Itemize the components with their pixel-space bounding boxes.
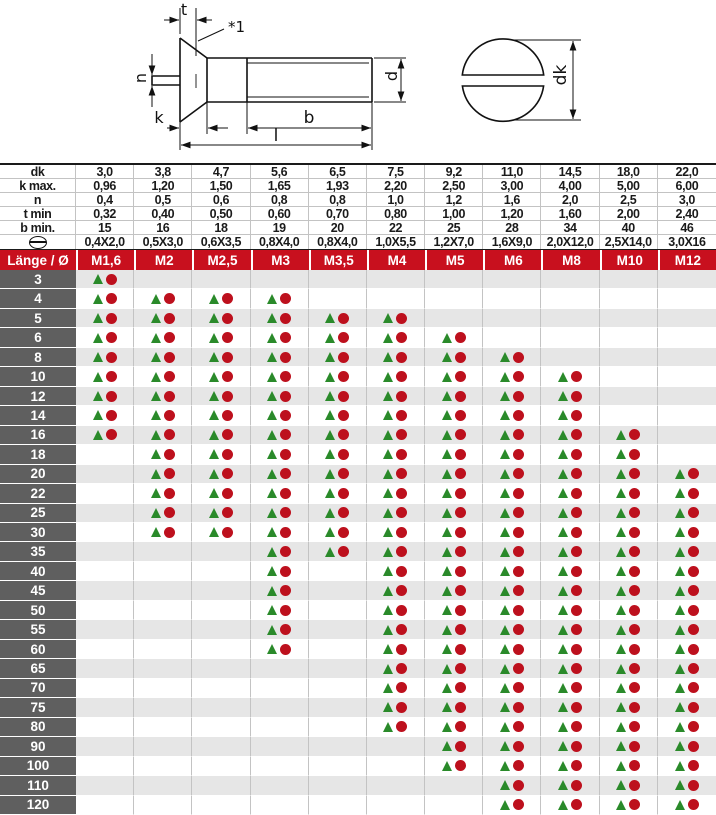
triangle-icon: [383, 605, 393, 615]
triangle-icon: [616, 547, 626, 557]
circle-icon: [688, 468, 699, 479]
triangle-icon: [675, 586, 685, 596]
circle-icon: [455, 527, 466, 538]
matrix-cell: [76, 406, 134, 425]
dim-value-cell: 1,6: [483, 193, 541, 207]
length-row-label: 40: [0, 562, 76, 581]
circle-icon: [280, 332, 291, 343]
triangle-icon: [93, 391, 103, 401]
circle-icon: [455, 507, 466, 518]
dim-value-cell: 2,20: [367, 179, 425, 193]
matrix-cell: [425, 718, 483, 737]
matrix-cell: [483, 504, 541, 523]
matrix-cell: [600, 581, 658, 600]
matrix-row: 45: [0, 581, 716, 600]
dim-value-cell: 28: [483, 221, 541, 235]
triangle-icon: [267, 469, 277, 479]
circle-icon: [222, 313, 233, 324]
length-row-label: 55: [0, 620, 76, 639]
circle-icon: [455, 468, 466, 479]
triangle-icon: [267, 644, 277, 654]
matrix-cell: [192, 367, 250, 386]
circle-icon: [571, 780, 582, 791]
circle-icon: [571, 527, 582, 538]
matrix-cell: [367, 309, 425, 328]
matrix-cell: [483, 659, 541, 678]
circle-icon: [280, 507, 291, 518]
circle-icon: [280, 644, 291, 655]
dim-row-label: k max.: [0, 179, 76, 193]
matrix-cell: [134, 640, 192, 659]
triangle-icon: [675, 780, 685, 790]
length-row-label: 6: [0, 328, 76, 347]
triangle-icon: [675, 488, 685, 498]
circle-icon: [338, 371, 349, 382]
matrix-cell: [76, 718, 134, 737]
matrix-row: 70: [0, 679, 716, 698]
circle-icon: [513, 682, 524, 693]
dim-value-cell: 1,65: [251, 179, 309, 193]
matrix-cell: [367, 523, 425, 542]
length-row-label: 22: [0, 484, 76, 503]
circle-icon: [455, 605, 466, 616]
circle-icon: [629, 663, 640, 674]
matrix-cell: [541, 620, 599, 639]
dim-table: dk3,03,84,75,66,57,59,211,014,518,022,0k…: [0, 163, 716, 249]
matrix-cell: [251, 484, 309, 503]
matrix-cell: [600, 562, 658, 581]
dim-value-cell: 1,50: [192, 179, 250, 193]
matrix-cell: [541, 426, 599, 445]
circle-icon: [164, 488, 175, 499]
matrix-cell: [483, 328, 541, 347]
circle-icon: [513, 799, 524, 810]
triangle-icon: [383, 430, 393, 440]
dim-value-cell: 2,40: [658, 207, 716, 221]
circle-icon: [629, 468, 640, 479]
matrix-cell: [192, 426, 250, 445]
matrix-row: 3: [0, 270, 716, 289]
circle-icon: [164, 410, 175, 421]
length-row-label: 30: [0, 523, 76, 542]
circle-icon: [280, 488, 291, 499]
matrix-cell: [483, 620, 541, 639]
matrix-cell: [367, 270, 425, 289]
matrix-cell: [251, 620, 309, 639]
circle-icon: [513, 585, 524, 596]
triangle-icon: [209, 488, 219, 498]
triangle-icon: [442, 605, 452, 615]
matrix-cell: [658, 640, 716, 659]
matrix-cell: [541, 737, 599, 756]
circle-icon: [280, 429, 291, 440]
matrix-cell: [483, 757, 541, 776]
matrix-cell: [367, 484, 425, 503]
circle-icon: [571, 488, 582, 499]
circle-icon: [396, 488, 407, 499]
circle-icon: [571, 741, 582, 752]
matrix-cell: [309, 737, 367, 756]
triangle-icon: [383, 527, 393, 537]
matrix-cell: [76, 737, 134, 756]
circle-icon: [513, 507, 524, 518]
triangle-icon: [209, 469, 219, 479]
matrix-cell: [425, 445, 483, 464]
circle-icon: [629, 702, 640, 713]
circle-icon: [455, 702, 466, 713]
length-row-label: 45: [0, 581, 76, 600]
matrix-row: 18: [0, 445, 716, 464]
matrix-cell: [192, 504, 250, 523]
matrix-row: 100: [0, 757, 716, 776]
circle-icon: [222, 293, 233, 304]
circle-icon: [164, 507, 175, 518]
circle-icon: [280, 546, 291, 557]
matrix-cell: [192, 776, 250, 795]
triangle-icon: [616, 644, 626, 654]
matrix-cell: [425, 289, 483, 308]
matrix-cell: [658, 737, 716, 756]
matrix-cell: [367, 698, 425, 717]
triangle-icon: [616, 566, 626, 576]
matrix-cell: [367, 679, 425, 698]
triangle-icon: [267, 430, 277, 440]
triangle-icon: [383, 547, 393, 557]
dim-row-label: n: [0, 193, 76, 207]
matrix-cell: [309, 465, 367, 484]
matrix-cell: [425, 426, 483, 445]
matrix-cell: [658, 504, 716, 523]
circle-icon: [571, 663, 582, 674]
triangle-icon: [151, 294, 161, 304]
triangle-icon: [558, 644, 568, 654]
matrix-cell: [134, 484, 192, 503]
circle-icon: [106, 293, 117, 304]
triangle-icon: [616, 780, 626, 790]
matrix-cell: [192, 328, 250, 347]
matrix-cell: [600, 679, 658, 698]
dim-value-cell: 2,0: [541, 193, 599, 207]
circle-icon: [222, 391, 233, 402]
circle-icon: [222, 449, 233, 460]
circle-icon: [455, 644, 466, 655]
dim-row-label: dk: [0, 165, 76, 179]
length-row-label: 100: [0, 757, 76, 776]
matrix-cell: [658, 465, 716, 484]
triangle-icon: [325, 391, 335, 401]
circle-icon: [396, 644, 407, 655]
matrix-row: 6: [0, 328, 716, 347]
triangle-icon: [93, 352, 103, 362]
triangle-icon: [151, 508, 161, 518]
length-row-label: 50: [0, 601, 76, 620]
matrix-cell: [483, 601, 541, 620]
dim-value-cell: 0,80: [367, 207, 425, 221]
circle-icon: [571, 721, 582, 732]
matrix-cell: [134, 542, 192, 561]
triangle-icon: [675, 722, 685, 732]
matrix-cell: [251, 270, 309, 289]
matrix-cell: [658, 679, 716, 698]
matrix-cell: [309, 698, 367, 717]
circle-icon: [164, 449, 175, 460]
circle-icon: [280, 585, 291, 596]
circle-icon: [280, 624, 291, 635]
matrix-cell: [251, 601, 309, 620]
circle-icon: [280, 605, 291, 616]
circle-icon: [396, 449, 407, 460]
triangle-icon: [267, 488, 277, 498]
triangle-icon: [500, 352, 510, 362]
triangle-icon: [500, 508, 510, 518]
triangle-icon: [500, 664, 510, 674]
circle-icon: [629, 644, 640, 655]
matrix-cell: [134, 289, 192, 308]
circle-icon: [338, 410, 349, 421]
circle-icon: [396, 702, 407, 713]
circle-icon: [571, 546, 582, 557]
matrix-cell: [76, 542, 134, 561]
triangle-icon: [442, 702, 452, 712]
matrix-cell: [367, 289, 425, 308]
matrix-cell: [309, 367, 367, 386]
circle-icon: [338, 507, 349, 518]
matrix-cell: [541, 367, 599, 386]
triangle-icon: [558, 449, 568, 459]
matrix-cell: [251, 757, 309, 776]
triangle-icon: [267, 527, 277, 537]
circle-icon: [629, 721, 640, 732]
matrix-cell: [76, 659, 134, 678]
matrix-cell: [76, 387, 134, 406]
triangle-icon: [616, 430, 626, 440]
dim-row-icon-label: [0, 235, 76, 249]
triangle-icon: [675, 800, 685, 810]
circle-icon: [513, 391, 524, 402]
matrix-cell: [309, 504, 367, 523]
dim-value-cell: 1,00: [425, 207, 483, 221]
matrix-cell: [134, 445, 192, 464]
matrix-cell: [367, 465, 425, 484]
matrix-cell: [309, 289, 367, 308]
label-note1: *1: [228, 18, 245, 36]
dim-value-cell: 46: [658, 221, 716, 235]
circle-icon: [571, 429, 582, 440]
dim-value-cell: 0,32: [76, 207, 134, 221]
circle-icon: [106, 274, 117, 285]
matrix-cell: [367, 328, 425, 347]
triangle-icon: [500, 586, 510, 596]
matrix-cell: [251, 679, 309, 698]
circle-icon: [396, 605, 407, 616]
dim-value-cell: 1,20: [483, 207, 541, 221]
matrix-cell: [483, 445, 541, 464]
circle-icon: [513, 605, 524, 616]
triangle-icon: [383, 313, 393, 323]
matrix-cell: [658, 484, 716, 503]
circle-icon: [513, 488, 524, 499]
circle-icon: [455, 410, 466, 421]
matrix-cell: [541, 387, 599, 406]
size-column-header: M3,5: [309, 250, 367, 270]
triangle-icon: [675, 644, 685, 654]
triangle-icon: [442, 761, 452, 771]
triangle-icon: [267, 410, 277, 420]
matrix-cell: [541, 348, 599, 367]
matrix-cell: [134, 659, 192, 678]
circle-icon: [513, 527, 524, 538]
matrix-cell: [76, 367, 134, 386]
matrix-row: 22: [0, 484, 716, 503]
triangle-icon: [558, 430, 568, 440]
circle-icon: [513, 741, 524, 752]
matrix-cell: [483, 737, 541, 756]
matrix-cell: [367, 620, 425, 639]
matrix-cell: [134, 406, 192, 425]
matrix-cell: [541, 796, 599, 815]
triangle-icon: [675, 547, 685, 557]
triangle-icon: [616, 683, 626, 693]
matrix-cell: [192, 542, 250, 561]
matrix-row: 4: [0, 289, 716, 308]
triangle-icon: [558, 372, 568, 382]
circle-icon: [396, 468, 407, 479]
matrix-cell: [76, 601, 134, 620]
circle-icon: [571, 799, 582, 810]
matrix-cell: [483, 581, 541, 600]
matrix-cell: [541, 776, 599, 795]
triangle-icon: [383, 352, 393, 362]
triangle-icon: [267, 313, 277, 323]
matrix-cell: [425, 484, 483, 503]
triangle-icon: [442, 547, 452, 557]
dim-value-cell: 5,00: [600, 179, 658, 193]
triangle-icon: [267, 547, 277, 557]
triangle-icon: [267, 586, 277, 596]
matrix-cell: [192, 523, 250, 542]
triangle-icon: [616, 722, 626, 732]
triangle-icon: [93, 313, 103, 323]
matrix-cell: [658, 698, 716, 717]
matrix-cell: [483, 270, 541, 289]
matrix-cell: [600, 796, 658, 815]
circle-icon: [280, 468, 291, 479]
dim-value-cell: 5,6: [251, 165, 309, 179]
matrix-cell: [658, 367, 716, 386]
matrix-row: 110: [0, 776, 716, 795]
length-row-label: 25: [0, 504, 76, 523]
technical-drawing: t *1 n k b l d dk: [0, 0, 716, 163]
circle-icon: [688, 663, 699, 674]
matrix-cell: [192, 309, 250, 328]
matrix-cell: [251, 465, 309, 484]
matrix-cell: [658, 542, 716, 561]
circle-icon: [571, 391, 582, 402]
circle-icon: [106, 352, 117, 363]
matrix-cell: [251, 698, 309, 717]
matrix-cell: [483, 523, 541, 542]
length-row-label: 16: [0, 426, 76, 445]
triangle-icon: [558, 722, 568, 732]
matrix-cell: [309, 601, 367, 620]
matrix-cell: [192, 581, 250, 600]
matrix-cell: [192, 601, 250, 620]
matrix-cell: [192, 445, 250, 464]
triangle-icon: [616, 761, 626, 771]
circle-icon: [513, 429, 524, 440]
matrix-row: 40: [0, 562, 716, 581]
circle-icon: [688, 682, 699, 693]
triangle-icon: [267, 566, 277, 576]
matrix-cell: [192, 387, 250, 406]
circle-icon: [396, 682, 407, 693]
circle-icon: [571, 624, 582, 635]
triangle-icon: [558, 410, 568, 420]
circle-icon: [571, 371, 582, 382]
triangle-icon: [442, 410, 452, 420]
matrix-cell: [134, 620, 192, 639]
dim-value-cell: 7,5: [367, 165, 425, 179]
matrix-cell: [425, 309, 483, 328]
matrix-cell: [483, 289, 541, 308]
matrix-cell: [76, 581, 134, 600]
circle-icon: [338, 429, 349, 440]
matrix-row: 80: [0, 718, 716, 737]
matrix-cell: [658, 757, 716, 776]
matrix-cell: [309, 523, 367, 542]
circle-icon: [164, 371, 175, 382]
matrix-cell: [600, 640, 658, 659]
dim-value-cell: 15: [76, 221, 134, 235]
dim-value-cell: 0,6X3,5: [192, 235, 250, 249]
circle-icon: [396, 371, 407, 382]
matrix-row: 75: [0, 698, 716, 717]
circle-icon: [455, 741, 466, 752]
triangle-icon: [616, 800, 626, 810]
circle-icon: [455, 566, 466, 577]
matrix-cell: [425, 737, 483, 756]
dim-value-cell: 0,8X4,0: [309, 235, 367, 249]
circle-icon: [513, 410, 524, 421]
matrix-cell: [192, 484, 250, 503]
matrix-cell: [425, 640, 483, 659]
triangle-icon: [616, 605, 626, 615]
matrix-cell: [425, 796, 483, 815]
matrix-cell: [251, 523, 309, 542]
matrix-cell: [541, 659, 599, 678]
dim-value-cell: 3,00: [483, 179, 541, 193]
matrix-cell: [134, 601, 192, 620]
matrix-cell: [251, 504, 309, 523]
size-column-header: M2: [134, 250, 192, 270]
circle-icon: [164, 391, 175, 402]
matrix-cell: [367, 718, 425, 737]
matrix-cell: [367, 659, 425, 678]
circle-icon: [455, 391, 466, 402]
circle-icon: [629, 741, 640, 752]
matrix-cell: [309, 328, 367, 347]
triangle-icon: [383, 488, 393, 498]
circle-icon: [164, 313, 175, 324]
circle-icon: [513, 449, 524, 460]
circle-icon: [455, 585, 466, 596]
matrix-cell: [367, 737, 425, 756]
circle-icon: [455, 760, 466, 771]
matrix-cell: [541, 757, 599, 776]
triangle-icon: [558, 664, 568, 674]
triangle-icon: [383, 566, 393, 576]
circle-icon: [629, 605, 640, 616]
